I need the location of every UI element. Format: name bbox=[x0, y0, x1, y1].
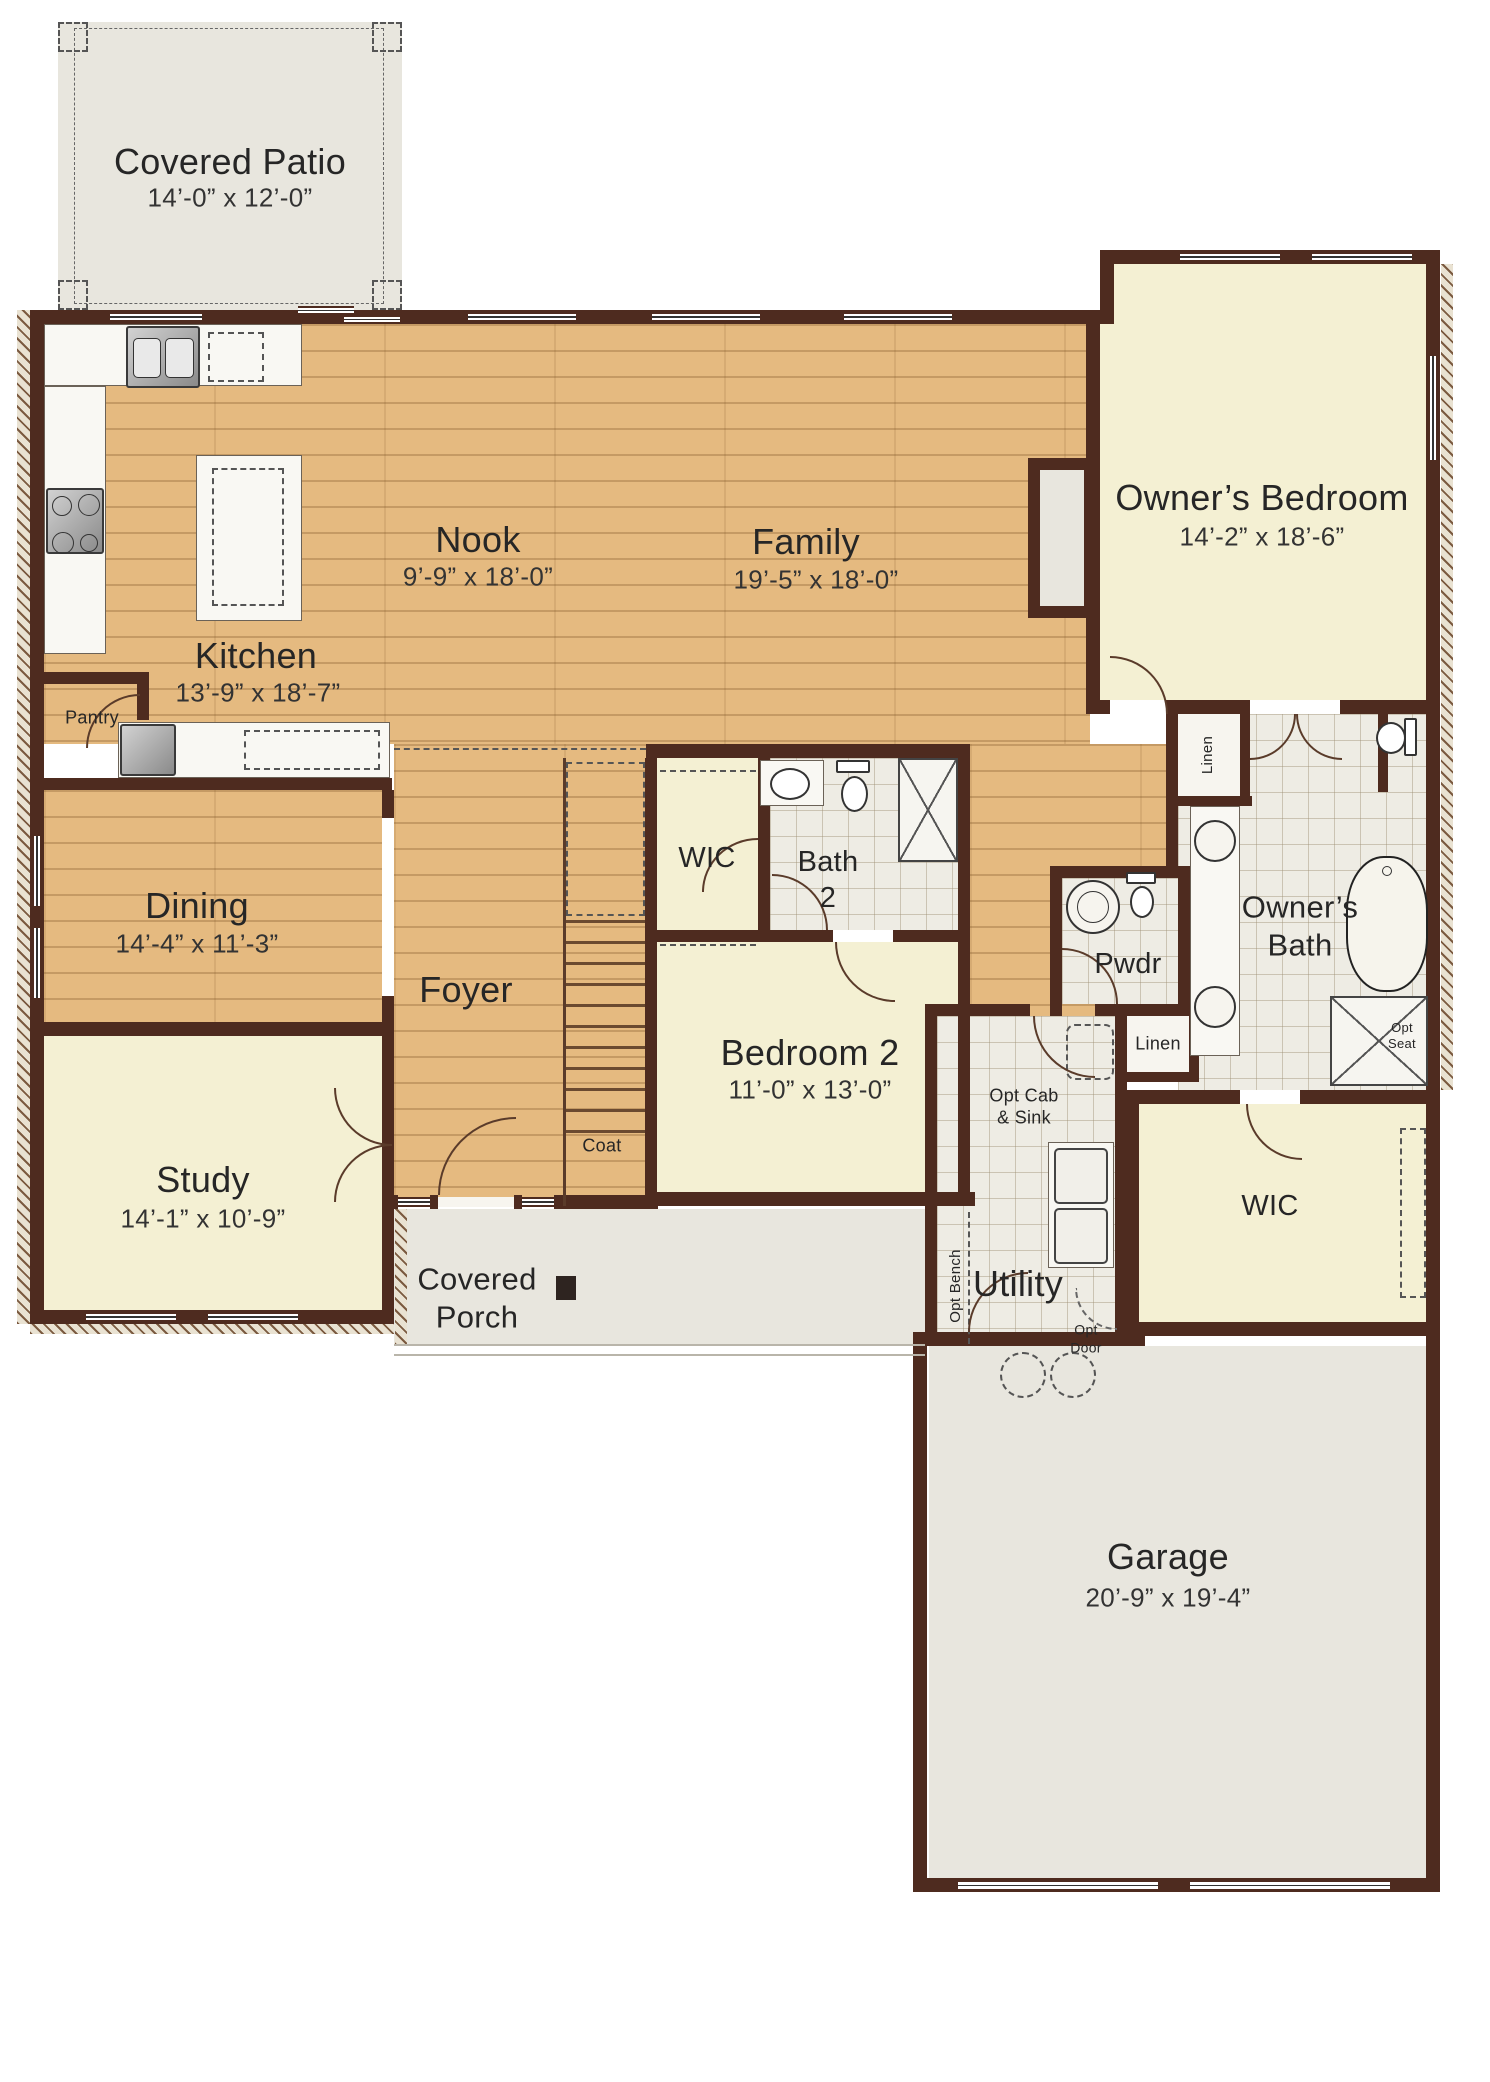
room-label-owners-bedroom: Owner’s Bedroom bbox=[1115, 479, 1408, 517]
wall bbox=[382, 790, 394, 818]
media-niche-floor bbox=[1040, 470, 1084, 606]
garage-door bbox=[958, 1880, 1158, 1891]
wall bbox=[645, 758, 657, 1206]
wic-shelf bbox=[660, 770, 756, 772]
sink-basin bbox=[133, 338, 161, 378]
label-opt-cab: Opt Cab bbox=[989, 1087, 1058, 1106]
owners-sink bbox=[1194, 820, 1236, 862]
ceiling-break bbox=[394, 748, 646, 750]
washer bbox=[1054, 1148, 1108, 1204]
room-label-bedroom2: Bedroom 2 bbox=[721, 1034, 900, 1072]
wall bbox=[30, 310, 44, 1324]
window bbox=[398, 1197, 430, 1207]
wall bbox=[554, 1195, 658, 1209]
bath2-toilet bbox=[841, 776, 868, 812]
room-dims-garage: 20’-9” x 19’-4” bbox=[1086, 1584, 1251, 1611]
label-opt-seat-2: Seat bbox=[1388, 1037, 1416, 1051]
stair-tread bbox=[566, 1046, 645, 1049]
label-opt-door-2: Door bbox=[1070, 1341, 1102, 1356]
room-label-bath2-num: 2 bbox=[820, 883, 836, 913]
exterior-brick bbox=[1441, 264, 1453, 1090]
bath2-shower bbox=[898, 758, 958, 862]
patio-slider bbox=[298, 306, 354, 315]
wall bbox=[1340, 700, 1440, 714]
wall bbox=[30, 1022, 394, 1036]
wall bbox=[893, 930, 970, 942]
wall bbox=[1166, 700, 1250, 714]
powder-toilet-tank bbox=[1126, 872, 1156, 884]
tub bbox=[1346, 856, 1428, 992]
wall bbox=[958, 744, 970, 1206]
window bbox=[468, 312, 576, 322]
sink-basin bbox=[165, 338, 194, 378]
label-opt-cab-2: & Sink bbox=[997, 1109, 1051, 1128]
stair-tread bbox=[566, 1130, 645, 1133]
room-label-wic-hall: WIC bbox=[678, 843, 735, 873]
bath2-toilet-tank bbox=[836, 760, 870, 773]
burner bbox=[78, 494, 100, 516]
stair-tread bbox=[566, 983, 645, 986]
wall bbox=[1178, 866, 1190, 1016]
label-opt-door: Opt bbox=[1074, 1323, 1097, 1338]
wall bbox=[30, 778, 392, 790]
wall bbox=[1050, 1004, 1062, 1016]
room-dims-covered-patio: 14’-0” x 12’-0” bbox=[148, 184, 313, 211]
window bbox=[32, 836, 42, 906]
room-dims-bedroom2: 11’-0” x 13’-0” bbox=[729, 1076, 892, 1103]
powder-sink-basin bbox=[1077, 891, 1109, 923]
wall bbox=[430, 1195, 438, 1209]
wall bbox=[1300, 1090, 1440, 1104]
room-dims-dining: 14’-4” x 11’-3” bbox=[116, 930, 279, 957]
wall bbox=[1050, 866, 1190, 878]
stair-open-below bbox=[566, 762, 645, 916]
label-opt-bench: Opt Bench bbox=[948, 1249, 964, 1323]
wall bbox=[1127, 1090, 1240, 1104]
tub-faucet bbox=[1382, 866, 1392, 876]
porch-edge bbox=[394, 1344, 925, 1346]
room-label-family: Family bbox=[752, 523, 860, 561]
dryer bbox=[1054, 1208, 1108, 1264]
water-heater bbox=[1050, 1352, 1096, 1398]
room-label-nook: Nook bbox=[435, 521, 520, 559]
burner bbox=[52, 496, 72, 516]
wc-toilet bbox=[1376, 722, 1406, 754]
wall bbox=[1050, 866, 1062, 1016]
stair-tread bbox=[566, 1088, 645, 1091]
stair-tread bbox=[566, 920, 645, 923]
wall bbox=[1426, 1090, 1440, 1892]
wall bbox=[44, 672, 149, 684]
porch-edge bbox=[394, 1354, 925, 1356]
wall bbox=[646, 744, 970, 758]
patio-column bbox=[58, 22, 88, 52]
stair-tread bbox=[566, 1067, 645, 1070]
room-label-dining: Dining bbox=[145, 887, 249, 925]
room-label-covered-porch-2: Porch bbox=[436, 1302, 518, 1335]
wall bbox=[657, 930, 833, 942]
wall bbox=[1240, 714, 1250, 796]
wall bbox=[382, 996, 394, 1024]
wall bbox=[514, 1195, 522, 1209]
powder-toilet bbox=[1130, 886, 1154, 918]
room-label-owners-bath: Owner’s bbox=[1242, 892, 1358, 925]
window bbox=[32, 928, 42, 998]
stair-tread bbox=[566, 1025, 645, 1028]
wall bbox=[1127, 1072, 1199, 1082]
label-linen-bath: Linen bbox=[1200, 736, 1216, 774]
label-linen-hall: Linen bbox=[1135, 1035, 1181, 1054]
porch-column bbox=[556, 1276, 576, 1300]
patio-slider bbox=[344, 315, 400, 324]
burner bbox=[52, 532, 74, 554]
wall bbox=[1166, 796, 1252, 806]
room-label-owners-bath-2: Bath bbox=[1268, 930, 1333, 963]
room-label-foyer: Foyer bbox=[419, 971, 513, 1009]
window bbox=[208, 1312, 298, 1322]
window bbox=[86, 1312, 176, 1322]
exterior-brick bbox=[30, 1324, 394, 1334]
wall bbox=[1127, 1090, 1139, 1336]
room-label-kitchen: Kitchen bbox=[195, 637, 317, 675]
wall bbox=[1086, 700, 1110, 714]
room-label-bath2: Bath bbox=[798, 847, 859, 877]
wall bbox=[925, 1004, 937, 1344]
wall bbox=[925, 1004, 1030, 1016]
window bbox=[1428, 356, 1438, 460]
room-label-covered-patio: Covered Patio bbox=[114, 143, 346, 181]
label-coat: Coat bbox=[582, 1137, 621, 1156]
room-dims-nook: 9’-9” x 18’-0” bbox=[403, 563, 553, 590]
island-cabinets bbox=[212, 468, 284, 606]
stair-tread bbox=[566, 1004, 645, 1007]
exterior-brick bbox=[17, 310, 30, 1324]
wic-shelves bbox=[1400, 1128, 1426, 1298]
window bbox=[1312, 252, 1412, 262]
bath2-sink bbox=[770, 768, 810, 800]
stair-rail bbox=[563, 758, 566, 1206]
room-label-study: Study bbox=[156, 1161, 250, 1199]
window bbox=[652, 312, 760, 322]
room-label-garage: Garage bbox=[1107, 1538, 1229, 1576]
wic-shelf bbox=[660, 944, 756, 946]
wall bbox=[1118, 1004, 1190, 1016]
window bbox=[522, 1197, 554, 1207]
room-label-utility: Utility bbox=[973, 1265, 1063, 1303]
garage-door bbox=[1190, 1880, 1390, 1891]
patio-column bbox=[58, 280, 88, 310]
room-label-wic-owner: WIC bbox=[1241, 1191, 1298, 1221]
dishwasher bbox=[208, 332, 264, 382]
opt-counter bbox=[244, 730, 380, 770]
stair-tread bbox=[566, 941, 645, 944]
room-dims-family: 19’-5” x 18’-0” bbox=[734, 566, 899, 593]
window bbox=[1180, 252, 1280, 262]
room-dims-owners-bedroom: 14’-2” x 18’-6” bbox=[1180, 523, 1345, 550]
label-opt-seat: Opt bbox=[1391, 1021, 1413, 1035]
room-label-pantry: Pantry bbox=[65, 709, 119, 728]
wall bbox=[1127, 1322, 1440, 1336]
wall bbox=[913, 1332, 927, 1892]
stair-tread bbox=[566, 962, 645, 965]
floor-plan: Covered Patio 14’-0” x 12’-0” Nook 9’-9”… bbox=[0, 0, 1490, 2082]
kitchen-window bbox=[110, 312, 202, 322]
room-dims-kitchen: 13’-9” x 18’-7” bbox=[176, 679, 341, 706]
owners-sink bbox=[1194, 986, 1236, 1028]
room-dims-study: 14’-1” x 10’-9” bbox=[121, 1205, 286, 1232]
room-label-covered-porch: Covered bbox=[417, 1264, 536, 1297]
patio-column bbox=[372, 280, 402, 310]
window bbox=[844, 312, 952, 322]
burner bbox=[80, 534, 98, 552]
patio-column bbox=[372, 22, 402, 52]
porch-brick bbox=[395, 1209, 407, 1345]
wall bbox=[1100, 250, 1114, 324]
water-heater bbox=[1000, 1352, 1046, 1398]
front-door-opening bbox=[438, 1197, 514, 1207]
wall bbox=[913, 1332, 1145, 1346]
stair-tread bbox=[566, 1109, 645, 1112]
room-label-pwdr: Pwdr bbox=[1094, 949, 1161, 979]
